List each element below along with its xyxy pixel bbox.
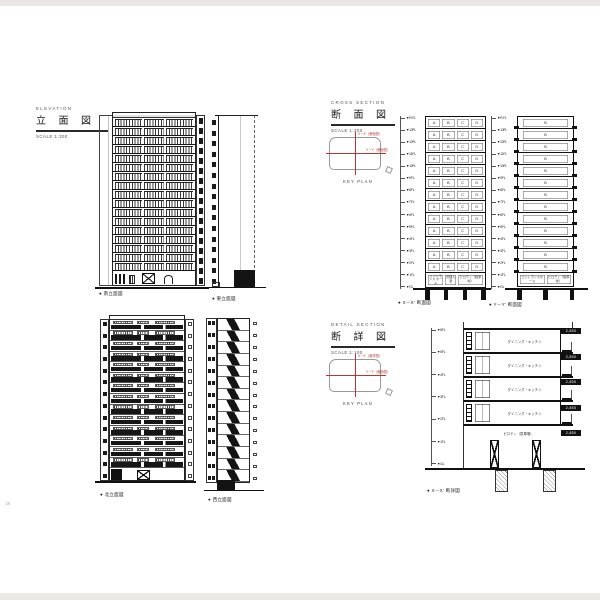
section-y-body: BBBBBBBBBBBBB (517, 116, 574, 273)
unit-cell: B (523, 143, 568, 151)
unit-cell: B (523, 263, 568, 271)
title-rule (331, 346, 395, 348)
unit-cell: D (471, 251, 483, 259)
ground-line (208, 287, 266, 289)
unit-cell: B (523, 131, 568, 139)
ground-line (204, 490, 264, 492)
ground-room-label: エントランス ホール (428, 275, 443, 285)
ground-line (95, 287, 209, 289)
adjacent-building (385, 166, 393, 174)
unit-cell: B (523, 227, 568, 235)
unit-cell: B (442, 227, 454, 235)
ground-room-label: ピロティ（駐車場） (458, 275, 483, 285)
unit-cell: A (428, 227, 440, 235)
floor-level-label: ▼7FL (406, 200, 414, 204)
south-side-wing (99, 115, 112, 286)
unit-cell: D (471, 155, 483, 163)
unit-cell: B (442, 155, 454, 163)
caption-section-x: ● X－X′ 断面図 (398, 300, 431, 306)
caption-west-elevation: ● 西立面図 (208, 497, 232, 503)
foundation-pier (543, 470, 556, 492)
unit-cell: C (457, 167, 469, 175)
unit-cell: A (428, 167, 440, 175)
elevation-south-drawing (99, 112, 205, 290)
floor-level-label: ▼8FL (406, 188, 414, 192)
south-facade (112, 112, 196, 286)
unit-cell: C (457, 239, 469, 247)
elev-south-sidecol (196, 115, 205, 286)
floor-height-dim: 2,850 (561, 405, 581, 411)
title-rule (36, 130, 108, 132)
pier (444, 290, 449, 300)
floor-level-label: ▼4FL (437, 373, 445, 377)
unit-cell: B (442, 263, 454, 271)
floor-level-label: ▼GL (497, 285, 504, 289)
stair-core-base (234, 270, 255, 287)
photo-edge-top (0, 0, 600, 6)
adjacent-building (385, 388, 393, 396)
section-y-levels: ▼R.FL▼13FL▼12FL▼11FL▼10FL▼9FL▼8FL▼7FL▼6F… (491, 116, 513, 289)
unit-cell: B (523, 155, 568, 163)
detail-section-title-en: DETAIL SECTION (331, 322, 411, 327)
unit-cell: D (471, 215, 483, 223)
floor-level-label: ▼2FL (497, 261, 505, 265)
unit-cell: D (471, 143, 483, 151)
room-label: ダイニング・キッチン (492, 330, 557, 352)
key-plan-detail-section: X－X'（断詳図） Y－Y'（断面図） KEY PLAN (327, 354, 395, 406)
unit-cell: D (471, 263, 483, 271)
caption-section-y: ● Y－Y′ 断面図 (489, 302, 522, 308)
entrance-arch (164, 275, 173, 284)
floor-level-label: ▼6FL (497, 213, 505, 217)
cut-line-floor (463, 322, 573, 330)
pier (570, 290, 575, 300)
unit-cell: B (523, 203, 568, 211)
floor-level-label: ▼7FL (497, 200, 505, 204)
floor-height-dim: 2,850 (561, 354, 581, 360)
elev-west-rightcol (252, 322, 262, 480)
unit-cell: B (442, 143, 454, 151)
elevation-west-drawing (206, 315, 262, 497)
floor-level-label: ▼11FL (406, 152, 416, 156)
unit-cell: B (442, 203, 454, 211)
unit-cell: B (523, 179, 568, 187)
floor-level-label: ▼9FL (406, 176, 414, 180)
south-ground-floor (113, 271, 195, 285)
unit-cell: D (471, 191, 483, 199)
section-x-levels: ▼R.FL▼13FL▼12FL▼11FL▼10FL▼9FL▼8FL▼7FL▼6F… (400, 116, 423, 289)
section-x-grid: ABCDABCDABCDABCDABCDABCDABCDABCDABCDABCD… (425, 116, 486, 273)
detail-section-title-block: DETAIL SECTION 断 詳 図 SCALE 1:100 (331, 322, 411, 355)
ground-core-block (111, 469, 122, 480)
unit-cell: D (471, 203, 483, 211)
unit-cell: C (457, 251, 469, 259)
elev-east-wincol (210, 120, 218, 284)
room-label: ダイニング・キッチン (492, 354, 557, 376)
floor-level-label: ▼12FL (497, 140, 507, 144)
pier (425, 290, 430, 300)
unit-cell: C (457, 227, 469, 235)
unit-cell: C (457, 263, 469, 271)
unit-cell: B (523, 191, 568, 199)
floor-height-dim: 2,850 (561, 430, 581, 436)
stair-base-block (217, 480, 235, 490)
unit-cell: B (523, 239, 568, 247)
unit-cell: A (428, 251, 440, 259)
unit-cell: A (428, 263, 440, 271)
unit-cell: D (471, 131, 483, 139)
floor-level-label: ▼4FL (497, 237, 505, 241)
floor-level-label: ▼3FL (497, 249, 505, 253)
cross-section-title-en: CROSS SECTION (331, 100, 411, 105)
elev-south-floors (113, 118, 195, 271)
floor-height-dim: 2,850 (561, 379, 581, 385)
unit-cell: D (471, 227, 483, 235)
section-line-y-label: Y－Y'（断面図） (366, 369, 390, 374)
north-facade (109, 315, 185, 481)
ground-room-label: エントランスホール (520, 275, 545, 284)
unit-cell: D (471, 239, 483, 247)
elevation-north-drawing (100, 315, 194, 492)
unit-cell: B (442, 239, 454, 247)
floor-level-label: ▼9FL (497, 176, 505, 180)
unit-cell: A (428, 143, 440, 151)
unit-cell: B (523, 119, 568, 127)
unit-cell: B (442, 119, 454, 127)
unit-cell: A (428, 131, 440, 139)
floor-level-label: ▼1FL (497, 273, 505, 277)
unit-cell: B (442, 167, 454, 175)
east-facade (218, 115, 255, 288)
unit-cell: A (428, 155, 440, 163)
floor-level-label: ▼6FL (437, 328, 445, 332)
ground-room-label: ピロティ（駐車場） (547, 275, 572, 284)
detail-dims: 2,8502,8502,8502,8502,850 (561, 328, 583, 436)
elev-west-wincol (206, 318, 217, 483)
section-y-ground: エントランスホールピロティ（駐車場） (517, 272, 574, 287)
floor-level-label: ▼13FL (406, 128, 416, 132)
unit-cell: C (457, 191, 469, 199)
floor-level-label: ▼13FL (497, 128, 507, 132)
section-x-frame: ABCDABCDABCDABCDABCDABCDABCDABCDABCDABCD… (425, 116, 486, 288)
unit-cell: D (471, 179, 483, 187)
key-plan-label: KEY PLAN (327, 401, 389, 406)
detail-main: ダイニング・キッチンダイニング・キッチンダイニング・キッチンダイニング・キッチン… (463, 322, 573, 468)
floor-level-label: ▼6FL (406, 213, 414, 217)
floor-level-label: ▼5FL (497, 225, 505, 229)
title-rule (331, 124, 395, 126)
unit-cell: C (457, 203, 469, 211)
pilotis-column (490, 440, 499, 468)
floor-height-dim: 2,850 (561, 328, 581, 334)
floor-level-label: ▼1FL (406, 273, 414, 277)
unit-cell: A (428, 179, 440, 187)
room-label: ダイニング・キッチン (492, 378, 557, 400)
elev-north-leftcol (100, 319, 109, 481)
room-label: ダイニング・キッチン (492, 402, 557, 424)
floor-level-label: ▼11FL (497, 152, 507, 156)
floor-level-label: ▼R.FL (497, 116, 507, 120)
unit-cell: C (457, 119, 469, 127)
unit-cell: D (471, 119, 483, 127)
key-plan-cross-section: X－X'（断面図） Y－Y'（断面図） KEY PLAN (327, 132, 395, 184)
floor-level-label: ▼10FL (497, 164, 507, 168)
unit-cell: D (471, 167, 483, 175)
cross-section-x-drawing: ▼R.FL▼13FL▼12FL▼11FL▼10FL▼9FL▼8FL▼7FL▼6F… (398, 112, 490, 308)
pier (543, 290, 548, 300)
floor-level-label: ▼5FL (437, 350, 445, 354)
unit-cell: B (523, 167, 568, 175)
pier (481, 290, 486, 300)
elevation-title-en: ELEVATION (36, 106, 116, 111)
floor-level-label: ▼R.FL (406, 116, 416, 120)
cross-section-y-drawing: ▼R.FL▼13FL▼12FL▼11FL▼10FL▼9FL▼8FL▼7FL▼6F… (489, 112, 586, 311)
unit-cell: B (523, 251, 568, 259)
key-plan-label: KEY PLAN (327, 179, 389, 184)
pilotis-column (532, 440, 541, 468)
page-number: 18 (5, 501, 10, 506)
elev-west-stairs (217, 318, 250, 483)
detail-section-title-ja: 断 詳 図 (331, 328, 411, 343)
caption-north-elevation: ● 北立面図 (100, 492, 124, 498)
unit-cell: C (457, 131, 469, 139)
unit-cell: B (442, 251, 454, 259)
entrance-window (129, 275, 135, 284)
section-line-x-label: X－X'（断面図） (358, 131, 382, 136)
floor-level-label: ▼GL (437, 462, 444, 466)
caption-south-elevation: ● 南立面図 (99, 291, 123, 297)
detail-section-drawing: ▼6FL▼5FL▼4FL▼3FL▼2FL▼1FL▼GL ダイニング・キッチンダイ… (425, 320, 585, 498)
unit-cell: A (428, 215, 440, 223)
unit-cell: A (428, 191, 440, 199)
elevation-east-drawing (210, 113, 263, 295)
floor-level-label: ▼4FL (406, 237, 414, 241)
floor-level-label: ▼3FL (406, 249, 414, 253)
foundation-piers (425, 290, 486, 300)
floor-level-label: ▼12FL (406, 140, 416, 144)
unit-cell: A (428, 119, 440, 127)
section-line-y (326, 375, 386, 376)
pier (463, 290, 468, 300)
unit-cell: A (428, 239, 440, 247)
foundation-piers (517, 290, 574, 300)
section-line-y-label: Y－Y'（断面図） (366, 147, 390, 152)
pier (517, 290, 522, 300)
floor-level-label: ▼2FL (406, 261, 414, 265)
unit-cell: B (442, 191, 454, 199)
entrance-column (119, 274, 121, 284)
elev-north-floors (110, 320, 184, 468)
section-x-ground: エントランス ホール管理人 室ピロティ（駐車場） (425, 273, 486, 288)
foundation-pier (495, 470, 508, 492)
floor-level-label: ▼1FL (437, 440, 445, 444)
unit-cell: B (442, 131, 454, 139)
entrance-column (115, 274, 117, 284)
floor-level-label: ▼5FL (406, 225, 414, 229)
unit-cell: A (428, 203, 440, 211)
unit-cell: B (442, 215, 454, 223)
north-ground-floor (110, 468, 184, 480)
section-line-x-label: X－X'（断詳図） (358, 353, 382, 358)
photo-edge-bottom (0, 593, 600, 600)
section-line-y (326, 153, 386, 154)
caption-detail-section: ● X－X′ 断詳図 (427, 488, 460, 494)
x-brace-panel (137, 470, 150, 480)
floor-level-label: ▼2FL (437, 417, 445, 421)
x-brace-panel (142, 273, 155, 284)
elev-north-rightcol (185, 319, 194, 481)
caption-east-elevation: ● 東立面図 (212, 296, 236, 302)
pilotis-label: ピロティ（駐車場） (464, 431, 573, 436)
pilotis-area: ピロティ（駐車場） (463, 426, 573, 468)
ground-line (95, 481, 196, 483)
unit-cell: B (523, 215, 568, 223)
entrance-column (123, 274, 125, 284)
floor-level-label: ▼3FL (437, 395, 445, 399)
ground-room-label: 管理人 室 (445, 275, 456, 285)
unit-cell: C (457, 143, 469, 151)
unit-cell: C (457, 215, 469, 223)
detail-levels: ▼6FL▼5FL▼4FL▼3FL▼2FL▼1FL▼GL (431, 328, 459, 466)
unit-cell: C (457, 179, 469, 187)
unit-cell: B (442, 179, 454, 187)
unit-cell: C (457, 155, 469, 163)
floor-level-label: ▼8FL (497, 188, 505, 192)
floor-level-label: ▼10FL (406, 164, 416, 168)
detail-floors: ダイニング・キッチンダイニング・キッチンダイニング・キッチンダイニング・キッチン (463, 330, 573, 426)
